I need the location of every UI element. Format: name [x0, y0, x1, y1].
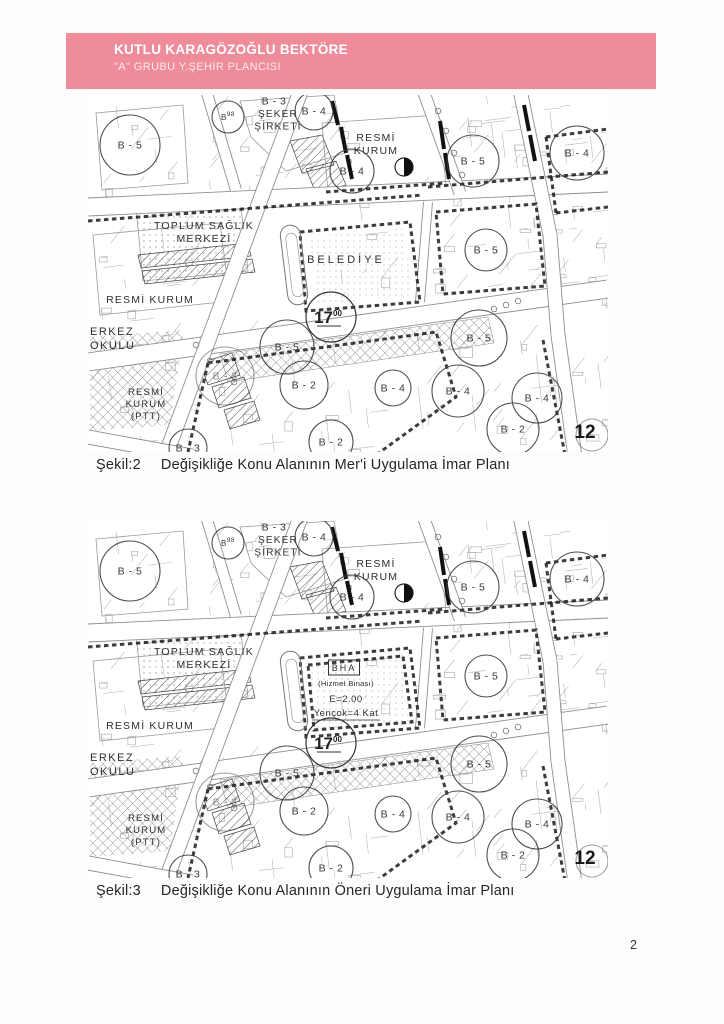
svg-text:ŞİRKETİ: ŞİRKETİ [254, 546, 301, 559]
svg-text:KURUM: KURUM [354, 145, 399, 157]
svg-text:OKULU: OKULU [90, 340, 135, 352]
letterhead-banner: KUTLU KARAGÖZOĞLU BEKTÖRE "A" GRUBU Y.ŞE… [66, 33, 656, 89]
svg-text:B98: B98 [221, 537, 235, 548]
figure-3: B - 5B98B - 3B - 4B - 43B - 5B - 4B - 5B… [88, 521, 608, 899]
svg-text:B - 4: B - 4 [302, 532, 327, 544]
svg-text:B - 4: B - 4 [565, 148, 590, 160]
svg-text:KURUM: KURUM [126, 399, 167, 410]
svg-text:E=2.00: E=2.00 [329, 694, 362, 705]
svg-text:B - 4: B - 4 [340, 592, 365, 604]
svg-text:BELEDİYE: BELEDİYE [307, 253, 385, 266]
svg-text:(Hizmet Binası): (Hizmet Binası) [318, 679, 374, 688]
svg-text:MERKEZİ: MERKEZİ [176, 232, 231, 245]
svg-text:B - 5: B - 5 [275, 768, 300, 780]
svg-text:B - 2: B - 2 [292, 806, 317, 818]
svg-text:BHA: BHA [332, 663, 357, 673]
svg-text:ŞİRKETİ: ŞİRKETİ [254, 120, 301, 133]
meri-plan-map: B - 5B98B - 3B - 4B - 43B - 5B - 4B - 5B… [88, 95, 608, 452]
svg-text:B - 4: B - 4 [381, 383, 406, 395]
svg-text:ŞEKER: ŞEKER [258, 535, 298, 546]
svg-text:TOPLUM SAĞLIK: TOPLUM SAĞLIK [154, 219, 254, 232]
svg-text:B - 2: B - 2 [501, 424, 526, 436]
svg-text:B - 2: B - 2 [319, 863, 344, 875]
svg-text:B - 3: B - 3 [213, 371, 238, 383]
planner-title: "A" GRUBU Y.ŞEHİR PLANCISI [114, 61, 656, 73]
svg-text:B - 5: B - 5 [275, 342, 300, 354]
svg-text:B - 3: B - 3 [262, 522, 287, 534]
svg-text:(PTT): (PTT) [131, 837, 161, 848]
svg-text:TOPLUM SAĞLIK: TOPLUM SAĞLIK [154, 645, 254, 658]
svg-text:B - 4: B - 4 [446, 386, 471, 398]
svg-text:B - 3: B - 3 [176, 443, 201, 452]
svg-text:B - 4: B - 4 [525, 393, 550, 405]
svg-text:B - 3: B - 3 [176, 869, 201, 878]
svg-text:B - 4: B - 4 [565, 574, 590, 586]
svg-text:ERKEZ: ERKEZ [90, 752, 134, 764]
svg-text:Yençok=4 Kat: Yençok=4 Kat [314, 708, 379, 719]
svg-text:B - 2: B - 2 [501, 850, 526, 862]
figure-3-caption-text: Değişikliğe Konu Alanının Öneri Uygulama… [161, 883, 515, 899]
figure-2: B - 5B98B - 3B - 4B - 43B - 5B - 4B - 5B… [88, 95, 608, 473]
page-number: 2 [630, 938, 637, 952]
svg-text:B - 4: B - 4 [525, 819, 550, 831]
svg-text:B - 4: B - 4 [302, 106, 327, 118]
svg-text:B - 5: B - 5 [118, 566, 143, 578]
svg-text:B - 5: B - 5 [474, 245, 499, 257]
svg-text:12: 12 [574, 848, 595, 869]
svg-text:3: 3 [348, 159, 352, 166]
svg-text:B - 4: B - 4 [446, 812, 471, 824]
svg-text:ERKEZ: ERKEZ [90, 326, 134, 338]
svg-text:OKULU: OKULU [90, 766, 135, 778]
svg-text:B - 2: B - 2 [292, 380, 317, 392]
svg-text:RESMİ: RESMİ [128, 813, 164, 824]
svg-text:(PTT): (PTT) [131, 411, 161, 422]
svg-text:RESMİ KURUM: RESMİ KURUM [106, 719, 194, 732]
planner-name: KUTLU KARAGÖZOĞLU BEKTÖRE [114, 42, 656, 57]
svg-text:3: 3 [348, 585, 352, 592]
svg-text:KURUM: KURUM [126, 825, 167, 836]
svg-text:RESMİ: RESMİ [356, 131, 395, 144]
figure-3-caption: Şekil:3 Değişikliğe Konu Alanının Öneri … [88, 883, 608, 899]
svg-text:ŞEKER: ŞEKER [258, 109, 298, 120]
svg-text:B98: B98 [221, 111, 235, 122]
svg-text:B - 5: B - 5 [118, 140, 143, 152]
svg-text:B - 5: B - 5 [467, 333, 492, 345]
svg-text:RESMİ KURUM: RESMİ KURUM [106, 293, 194, 306]
svg-text:B - 2: B - 2 [319, 437, 344, 449]
svg-text:RESMİ: RESMİ [128, 387, 164, 398]
svg-text:B - 3: B - 3 [262, 96, 287, 108]
svg-text:RESMİ: RESMİ [356, 557, 395, 570]
figure-2-caption: Şekil:2 Değişikliğe Konu Alanının Mer'i … [88, 457, 608, 473]
svg-text:B - 5: B - 5 [461, 156, 486, 168]
svg-text:B - 4: B - 4 [340, 166, 365, 178]
svg-text:KURUM: KURUM [354, 571, 399, 583]
svg-text:B - 3: B - 3 [213, 797, 238, 809]
oneri-plan-map: B - 5B98B - 3B - 4B - 43B - 5B - 4B - 5B… [88, 521, 608, 878]
figure-2-caption-text: Değişikliğe Konu Alanının Mer'i Uygulama… [161, 457, 510, 473]
svg-text:B - 5: B - 5 [461, 582, 486, 594]
svg-text:MERKEZİ: MERKEZİ [176, 658, 231, 671]
svg-text:12: 12 [574, 422, 595, 443]
figure-2-caption-label: Şekil:2 [96, 457, 141, 473]
svg-text:B - 4: B - 4 [381, 809, 406, 821]
figure-3-caption-label: Şekil:3 [96, 883, 141, 899]
svg-text:B - 5: B - 5 [474, 671, 499, 683]
svg-text:B - 5: B - 5 [467, 759, 492, 771]
